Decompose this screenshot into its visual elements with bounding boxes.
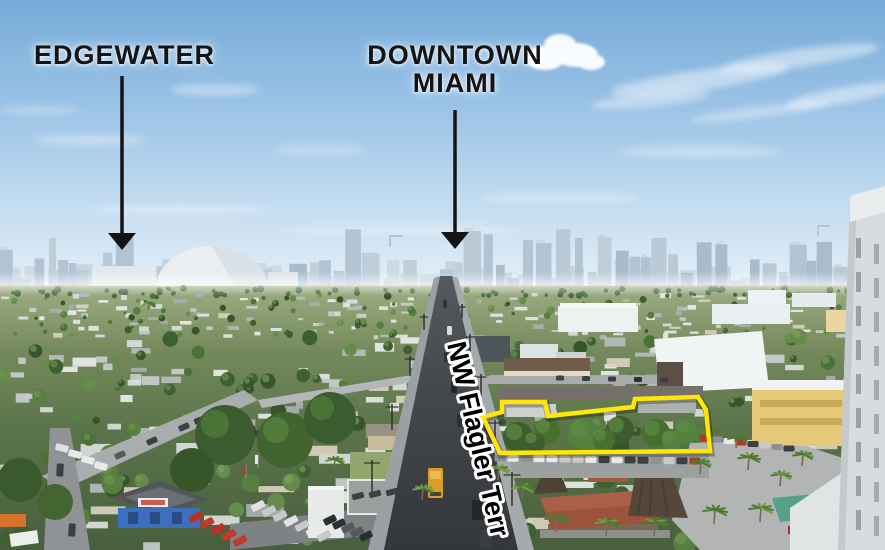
area-label-downtown: DOWNTOWN MIAMI xyxy=(330,41,580,97)
area-label-downtown-line1: DOWNTOWN xyxy=(330,41,580,69)
area-label-edgewater: EDGEWATER xyxy=(34,41,215,69)
area-label-downtown-line2: MIAMI xyxy=(330,69,580,97)
aerial-photo: NW Flagler Terr EDGEWATER DOWNTOWN MIAMI xyxy=(0,0,885,550)
